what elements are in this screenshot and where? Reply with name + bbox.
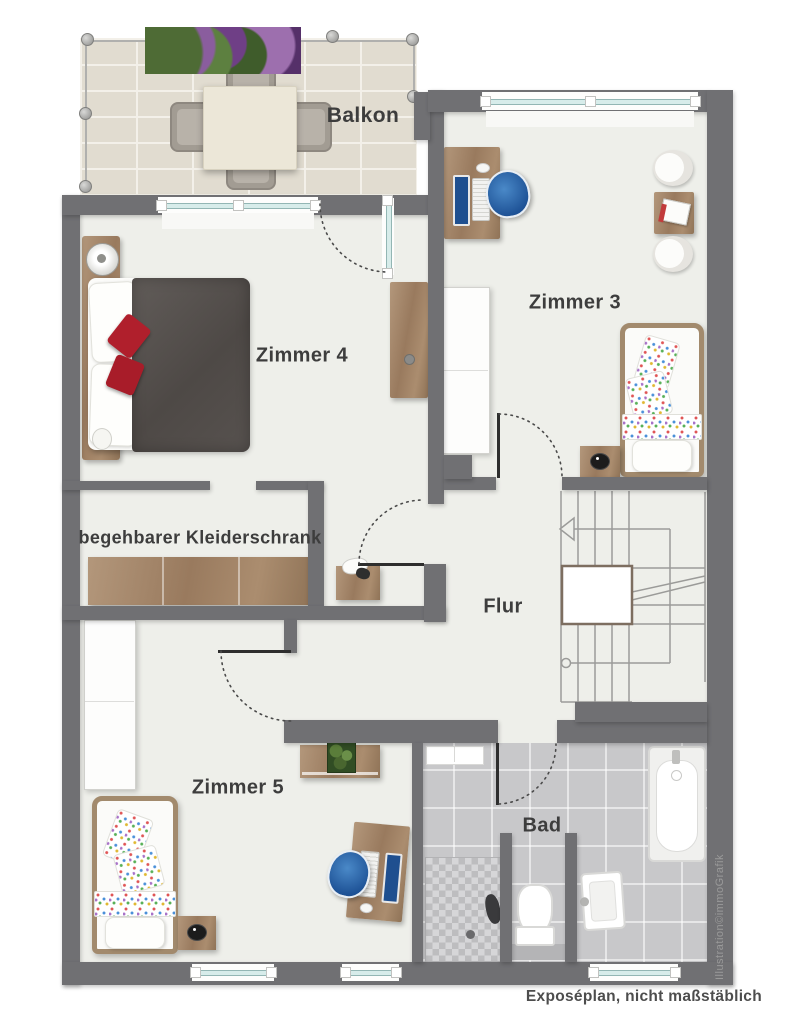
room-label-zimmer5: Zimmer 5	[192, 777, 284, 800]
door-leaf-bad	[496, 743, 499, 805]
nightstand-zimmer5	[178, 916, 216, 950]
wall-zimmer5-door-stub	[284, 620, 297, 653]
wardrobe-zimmer4	[390, 282, 428, 398]
bathtub-drain	[671, 770, 682, 781]
bathtub-faucet	[672, 750, 680, 764]
window-bad	[590, 964, 678, 981]
railing-post	[79, 107, 92, 120]
room-label-kleiderschrank: begehbarer Kleiderschrank	[78, 528, 321, 549]
window-sill	[162, 213, 314, 229]
balcony-table	[203, 86, 297, 170]
balcony-door-leaf	[382, 198, 394, 275]
plan-caption: Exposéplan, nicht maßstäblich	[526, 988, 762, 1006]
railing-post	[79, 180, 92, 193]
bedside-lamp-center	[97, 254, 106, 263]
sink-faucet	[580, 897, 590, 907]
railing-post	[81, 33, 94, 46]
window-zimmer4	[158, 197, 318, 213]
computer-monitor	[453, 175, 470, 226]
double-bed	[86, 276, 252, 454]
door-leaf-flur-zimmer4	[358, 563, 424, 566]
door-leaf-zimmer3	[497, 413, 500, 478]
wall-zimmer5-top	[62, 606, 446, 620]
plant	[327, 741, 356, 773]
railing-post	[406, 33, 419, 46]
wall-stairs-bottom	[575, 702, 707, 722]
wall-bad-zimmer5-divider	[412, 743, 423, 962]
sink	[580, 871, 626, 932]
wall-shower-divider	[500, 833, 512, 962]
room-label-flur: Flur	[483, 596, 522, 619]
room-label-zimmer3: Zimmer 3	[529, 292, 621, 315]
wardrobe-zimmer5	[84, 620, 136, 790]
door-leaf-zimmer5	[218, 650, 291, 653]
wall-toilet-divider	[565, 833, 577, 962]
mouse	[476, 163, 490, 173]
single-bed-zimmer5	[92, 796, 178, 954]
shoe-cabinet	[336, 566, 380, 600]
wall-right	[707, 90, 733, 985]
alarm-clock	[187, 924, 207, 941]
railing-post	[326, 30, 339, 43]
flower-box	[145, 27, 301, 74]
computer-monitor	[381, 853, 402, 904]
window-zimmer3	[482, 92, 698, 110]
mouse	[359, 903, 373, 914]
wall-zimmer3-door-stub	[444, 455, 472, 479]
tray	[92, 428, 112, 450]
wall-flur-bottom-right	[557, 720, 707, 743]
alarm-clock	[590, 453, 610, 470]
window-sill	[486, 111, 694, 127]
single-bed-zimmer3	[620, 323, 704, 477]
nightstand-zimmer3	[580, 446, 620, 478]
room-label-balkon: Balkon	[327, 104, 399, 128]
wall-flur-bottom-left	[284, 720, 498, 743]
window-zimmer5-left	[192, 964, 274, 981]
lounge-chair	[653, 150, 693, 186]
toilet-cistern	[515, 926, 555, 946]
room-label-bad: Bad	[523, 815, 562, 838]
closet-wardrobe	[88, 557, 312, 605]
side-table	[654, 192, 694, 234]
toilet-ledge	[511, 944, 567, 960]
wall-zimmer4-bottom-left	[62, 481, 210, 490]
window-zimmer5-right	[342, 964, 399, 981]
wall-zimmer3-bottom-right	[562, 477, 707, 490]
lounge-chair	[653, 236, 693, 272]
floor-plan: Balkon Zimmer 3 Zimmer 4 begehbarer Klei…	[0, 0, 786, 1024]
wall-left	[62, 195, 80, 985]
sideboard-zimmer5	[300, 745, 380, 778]
wall-flur-door-corner	[424, 564, 446, 622]
shower-drain	[466, 930, 475, 939]
bathtub	[648, 746, 706, 862]
wardrobe-zimmer3	[442, 287, 490, 454]
watermark-credit: Illustration©immoGrafik	[714, 854, 726, 980]
wall-divider-z3-z4	[428, 90, 444, 504]
room-label-zimmer4: Zimmer 4	[256, 345, 348, 368]
bathroom-shelf	[426, 746, 484, 765]
